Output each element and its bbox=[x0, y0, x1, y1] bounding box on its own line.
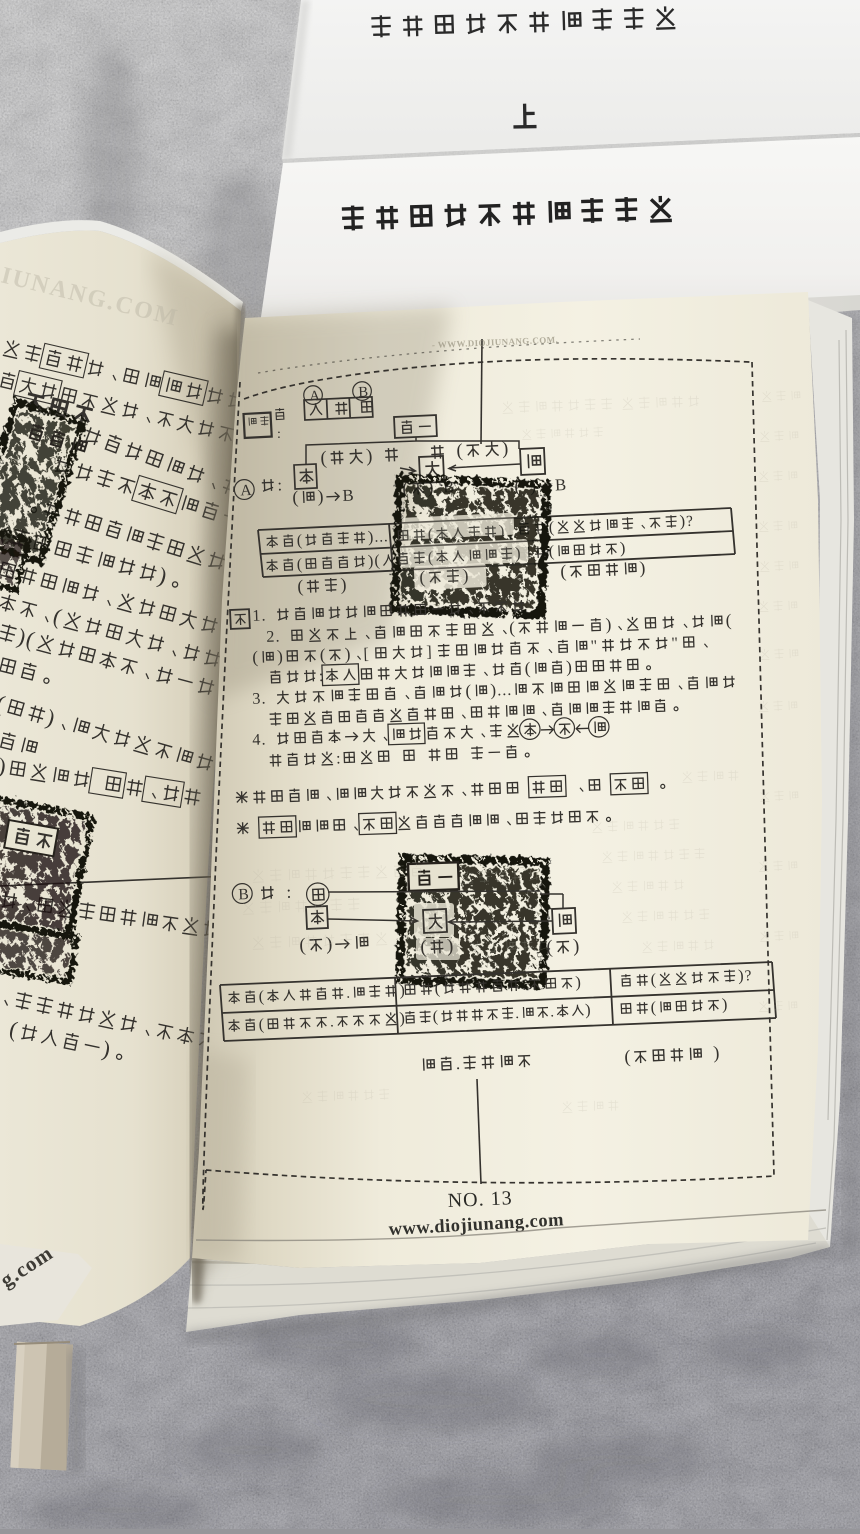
svg-text:): ) bbox=[498, 521, 504, 540]
svg-text::: : bbox=[336, 749, 341, 767]
svg-text:): ) bbox=[344, 644, 350, 663]
svg-text:(: ( bbox=[296, 530, 302, 549]
svg-text:(: ( bbox=[509, 618, 516, 637]
svg-text:(: ( bbox=[252, 648, 259, 667]
svg-text::: : bbox=[277, 475, 282, 494]
svg-text:.: . bbox=[275, 627, 280, 645]
svg-text:.: . bbox=[261, 606, 266, 624]
svg-text:(: ( bbox=[297, 576, 304, 597]
svg-text:(: ( bbox=[292, 487, 299, 508]
svg-text:): ) bbox=[462, 565, 469, 586]
svg-text::: : bbox=[277, 427, 281, 442]
svg-text:(: ( bbox=[258, 986, 264, 1005]
svg-text:[: [ bbox=[363, 645, 369, 663]
svg-text:): ) bbox=[713, 1043, 720, 1064]
svg-text:4: 4 bbox=[252, 731, 261, 749]
svg-text:]: ] bbox=[426, 643, 432, 661]
svg-text:(: ( bbox=[560, 561, 567, 582]
svg-text:(: ( bbox=[548, 541, 554, 560]
svg-text:): ) bbox=[367, 551, 373, 570]
svg-text:(: ( bbox=[420, 937, 427, 958]
svg-text:(: ( bbox=[456, 440, 463, 461]
svg-text::: : bbox=[286, 882, 292, 902]
svg-text:): ) bbox=[515, 543, 521, 562]
svg-text:(: ( bbox=[432, 1006, 438, 1025]
svg-text:(: ( bbox=[427, 524, 433, 543]
svg-text:(: ( bbox=[650, 969, 656, 988]
svg-text:.: . bbox=[502, 681, 507, 699]
svg-text:3: 3 bbox=[252, 690, 261, 708]
svg-text:): ) bbox=[367, 527, 373, 546]
svg-text:.: . bbox=[550, 1003, 555, 1020]
svg-text:NO. 13: NO. 13 bbox=[447, 1187, 513, 1212]
svg-text:": " bbox=[590, 637, 597, 655]
svg-text:B: B bbox=[342, 486, 354, 505]
svg-text:): ) bbox=[679, 511, 685, 530]
svg-text:.: . bbox=[522, 977, 527, 994]
svg-text:": " bbox=[671, 634, 678, 652]
svg-text:B: B bbox=[555, 475, 567, 494]
svg-text:): ) bbox=[605, 615, 611, 634]
svg-text:?: ? bbox=[744, 967, 752, 984]
svg-text:(: ( bbox=[419, 567, 426, 588]
svg-text:(: ( bbox=[427, 547, 433, 566]
svg-text:(: ( bbox=[374, 551, 380, 570]
svg-text:): ) bbox=[490, 680, 496, 699]
svg-text:.: . bbox=[261, 689, 266, 707]
svg-text:.: . bbox=[515, 1005, 520, 1022]
svg-text:): ) bbox=[738, 966, 744, 985]
svg-text:B: B bbox=[238, 886, 249, 903]
svg-text:.: . bbox=[261, 730, 266, 748]
svg-text:): ) bbox=[566, 657, 572, 676]
svg-text:): ) bbox=[639, 557, 646, 578]
svg-text:.: . bbox=[455, 1054, 460, 1073]
svg-text:): ) bbox=[317, 486, 324, 507]
svg-text:(: ( bbox=[258, 1014, 264, 1033]
svg-text:.: . bbox=[497, 681, 502, 699]
svg-text:1: 1 bbox=[252, 607, 261, 625]
svg-text:?: ? bbox=[686, 513, 694, 530]
svg-text:.: . bbox=[330, 1013, 335, 1030]
svg-text:): ) bbox=[573, 936, 580, 957]
svg-text:): ) bbox=[340, 574, 347, 595]
svg-text:(: ( bbox=[299, 935, 306, 956]
svg-text:): ) bbox=[722, 994, 728, 1013]
svg-text:): ) bbox=[585, 1000, 591, 1019]
svg-text:(: ( bbox=[434, 978, 440, 997]
svg-text:): ) bbox=[619, 538, 625, 557]
svg-text:.: . bbox=[383, 528, 388, 545]
svg-text:): ) bbox=[501, 438, 508, 459]
svg-text:): ) bbox=[399, 980, 405, 999]
svg-text:(: ( bbox=[320, 645, 327, 664]
svg-text:(: ( bbox=[725, 611, 732, 630]
svg-text:(: ( bbox=[624, 1046, 631, 1067]
svg-text:): ) bbox=[399, 1008, 405, 1027]
svg-text:(: ( bbox=[465, 681, 472, 700]
svg-text:.: . bbox=[507, 681, 512, 699]
svg-text:): ) bbox=[575, 972, 581, 991]
svg-text:): ) bbox=[365, 445, 372, 466]
svg-text:2: 2 bbox=[266, 628, 275, 646]
svg-text:(: ( bbox=[296, 554, 302, 573]
svg-text:(: ( bbox=[650, 997, 656, 1016]
svg-text:): ) bbox=[277, 647, 283, 666]
svg-text:(: ( bbox=[320, 448, 327, 469]
svg-text:.: . bbox=[346, 985, 351, 1002]
svg-text:(: ( bbox=[524, 659, 531, 678]
svg-text:): ) bbox=[447, 936, 454, 957]
